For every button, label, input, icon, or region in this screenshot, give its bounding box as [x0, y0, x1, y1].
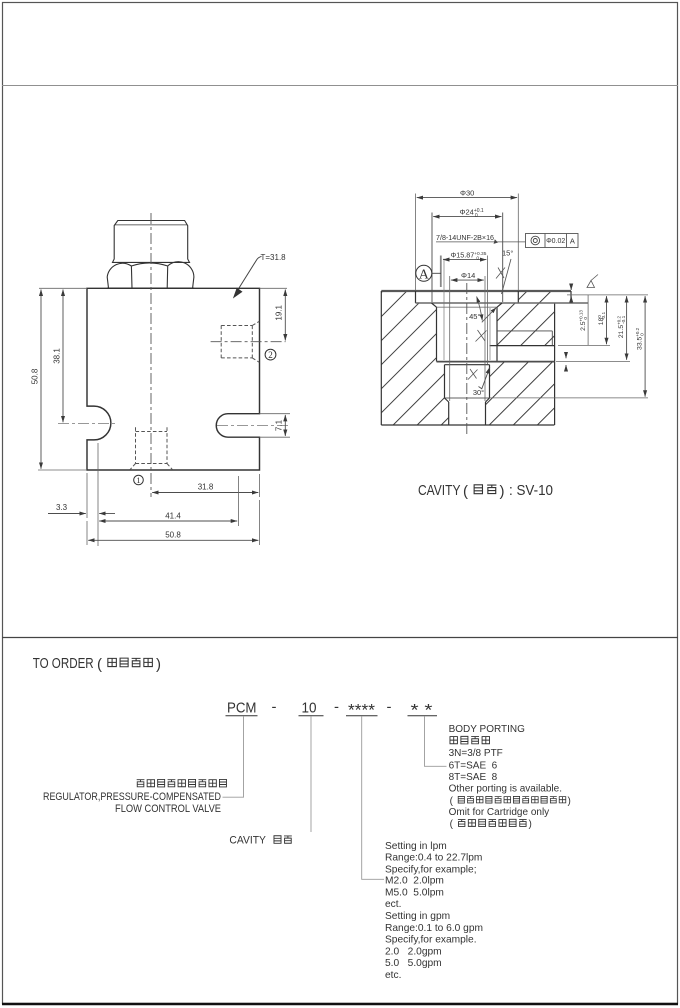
svg-text:BODY PORTING: BODY PORTING: [449, 724, 526, 735]
svg-text:M2.0 2.0lpm: M2.0 2.0lpm: [385, 876, 444, 887]
svg-text:Range:0.4 to 22.7lpm: Range:0.4 to 22.7lpm: [385, 853, 482, 864]
svg-text:Setting in gpm: Setting in gpm: [385, 911, 450, 922]
svg-text:31.8: 31.8: [198, 483, 214, 492]
svg-text:CAVITY: CAVITY: [418, 482, 461, 499]
svg-text:7/8-14UNF-2B×16: 7/8-14UNF-2B×16: [436, 233, 494, 242]
svg-text:etc.: etc.: [385, 970, 401, 981]
svg-text:Φ0.02: Φ0.02: [546, 238, 565, 245]
svg-text:Φ24+0.10: Φ24+0.10: [460, 208, 484, 219]
svg-text:7.1: 7.1: [275, 419, 284, 431]
svg-text:3.3: 3.3: [56, 503, 68, 512]
svg-text:): ): [568, 796, 571, 807]
svg-text:41.4: 41.4: [165, 511, 181, 520]
svg-text:1: 1: [136, 475, 140, 485]
svg-text:38.1: 38.1: [53, 348, 62, 364]
svg-text:(: (: [450, 819, 454, 830]
svg-text:50.8: 50.8: [165, 530, 181, 539]
svg-text:19.1: 19.1: [275, 304, 284, 320]
svg-text:45°: 45°: [469, 312, 480, 321]
svg-text:Specify,for example.: Specify,for example.: [385, 935, 477, 946]
svg-text:* *: * *: [411, 701, 433, 720]
svg-text:Range:0.1 to 6.0 gpm: Range:0.1 to 6.0 gpm: [385, 923, 483, 934]
svg-text:): ): [529, 819, 532, 830]
svg-text:Omit for Cartridge only: Omit for Cartridge only: [449, 807, 550, 818]
svg-text:180-0.1: 180-0.1: [597, 312, 607, 326]
svg-text:2: 2: [268, 350, 273, 360]
svg-text:Φ30: Φ30: [460, 189, 474, 198]
svg-text:2.0 2.0gpm: 2.0 2.0gpm: [385, 947, 442, 958]
svg-text:-: -: [387, 699, 392, 716]
svg-text:15°: 15°: [502, 249, 513, 258]
svg-text:2.5+0.130: 2.5+0.130: [579, 310, 589, 331]
svg-text:8T=SAE 8: 8T=SAE 8: [449, 772, 498, 783]
svg-text:A: A: [570, 236, 575, 245]
svg-text:CAVITY: CAVITY: [229, 835, 266, 847]
svg-text:50.8: 50.8: [31, 368, 40, 384]
svg-text:Other porting is available.: Other porting is available.: [449, 783, 562, 794]
svg-text:T=31.8: T=31.8: [261, 253, 287, 262]
svg-text:PCM: PCM: [227, 700, 257, 717]
svg-text:): ): [500, 483, 505, 500]
svg-text:Specify,for example;: Specify,for example;: [385, 865, 477, 876]
svg-text:): ): [156, 656, 161, 673]
svg-text:5.0 5.0gpm: 5.0 5.0gpm: [385, 958, 442, 969]
svg-text:TO ORDER: TO ORDER: [33, 655, 94, 672]
svg-text:Setting in lpm: Setting in lpm: [385, 841, 447, 852]
svg-text:FLOW CONTROL VALVE: FLOW CONTROL VALVE: [115, 803, 221, 815]
svg-text:M5.0 5.0lpm: M5.0 5.0lpm: [385, 888, 444, 899]
svg-text:30°: 30°: [473, 388, 484, 397]
svg-text:ect.: ect.: [385, 899, 401, 910]
svg-text:(: (: [450, 796, 454, 807]
svg-text:REGULATOR,PRESSURE-COMPENSATED: REGULATOR,PRESSURE-COMPENSATED: [43, 791, 221, 803]
svg-text:A: A: [419, 267, 430, 282]
svg-text:(: (: [463, 483, 468, 500]
svg-text:-: -: [272, 699, 277, 716]
svg-text:6T=SAE 6: 6T=SAE 6: [449, 760, 498, 771]
svg-text:(: (: [97, 656, 102, 673]
svg-text:: SV-10: : SV-10: [509, 482, 553, 499]
svg-text:21.5+0.2-0.1: 21.5+0.2-0.1: [617, 315, 627, 338]
svg-text:33.5+0.20: 33.5+0.20: [635, 327, 645, 350]
svg-text:10: 10: [302, 700, 317, 717]
svg-text:3N=3/8 PTF: 3N=3/8 PTF: [449, 748, 503, 759]
svg-text:Φ14: Φ14: [461, 271, 475, 280]
svg-text:-: -: [334, 699, 339, 716]
